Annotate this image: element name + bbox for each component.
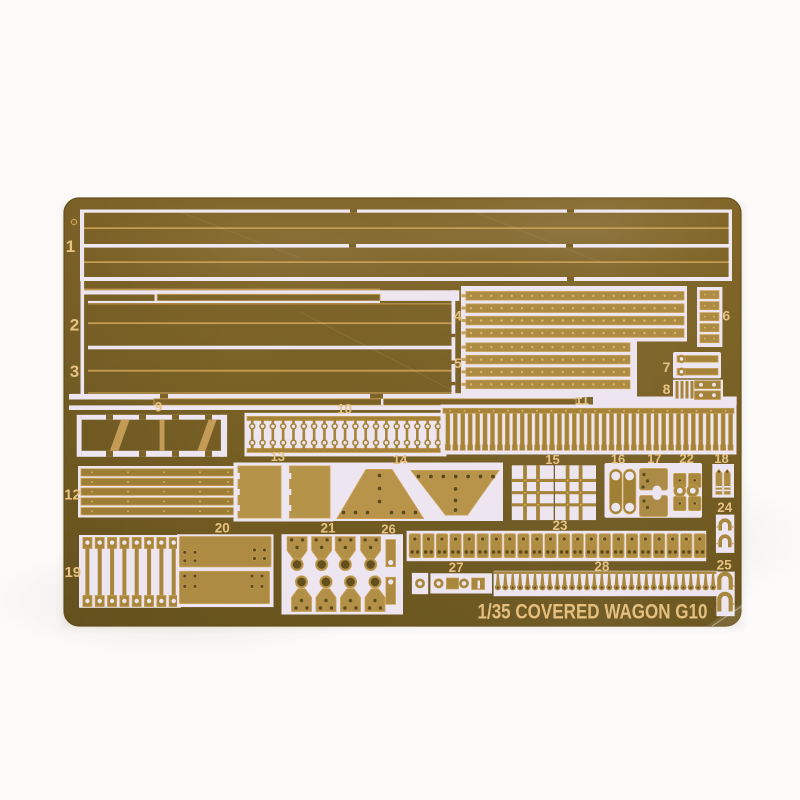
svg-text:1: 1	[66, 237, 75, 256]
svg-text:20: 20	[215, 521, 230, 536]
svg-text:16: 16	[611, 452, 625, 467]
svg-text:2: 2	[70, 316, 79, 335]
svg-text:22: 22	[679, 451, 693, 466]
svg-text:8: 8	[663, 381, 671, 397]
svg-text:21: 21	[320, 521, 336, 536]
svg-text:25: 25	[717, 558, 733, 573]
svg-text:27: 27	[449, 560, 464, 575]
svg-text:5: 5	[454, 355, 462, 371]
svg-text:26: 26	[381, 521, 395, 536]
svg-text:18: 18	[714, 451, 728, 466]
svg-text:9: 9	[155, 400, 163, 415]
svg-text:7: 7	[663, 359, 671, 375]
svg-text:15: 15	[545, 452, 559, 467]
svg-text:28: 28	[594, 559, 610, 574]
svg-text:19: 19	[64, 564, 81, 581]
svg-text:4: 4	[454, 307, 462, 323]
svg-text:12: 12	[64, 487, 81, 504]
svg-text:24: 24	[717, 500, 733, 515]
svg-text:3: 3	[70, 362, 79, 381]
svg-text:23: 23	[552, 518, 568, 533]
svg-text:13: 13	[271, 449, 285, 464]
svg-text:10: 10	[337, 402, 352, 417]
svg-text:14: 14	[393, 452, 408, 467]
svg-text:1/35 COVERED WAGON G10: 1/35 COVERED WAGON G10	[478, 601, 708, 624]
svg-text:6: 6	[722, 308, 730, 324]
svg-text:17: 17	[647, 451, 661, 466]
